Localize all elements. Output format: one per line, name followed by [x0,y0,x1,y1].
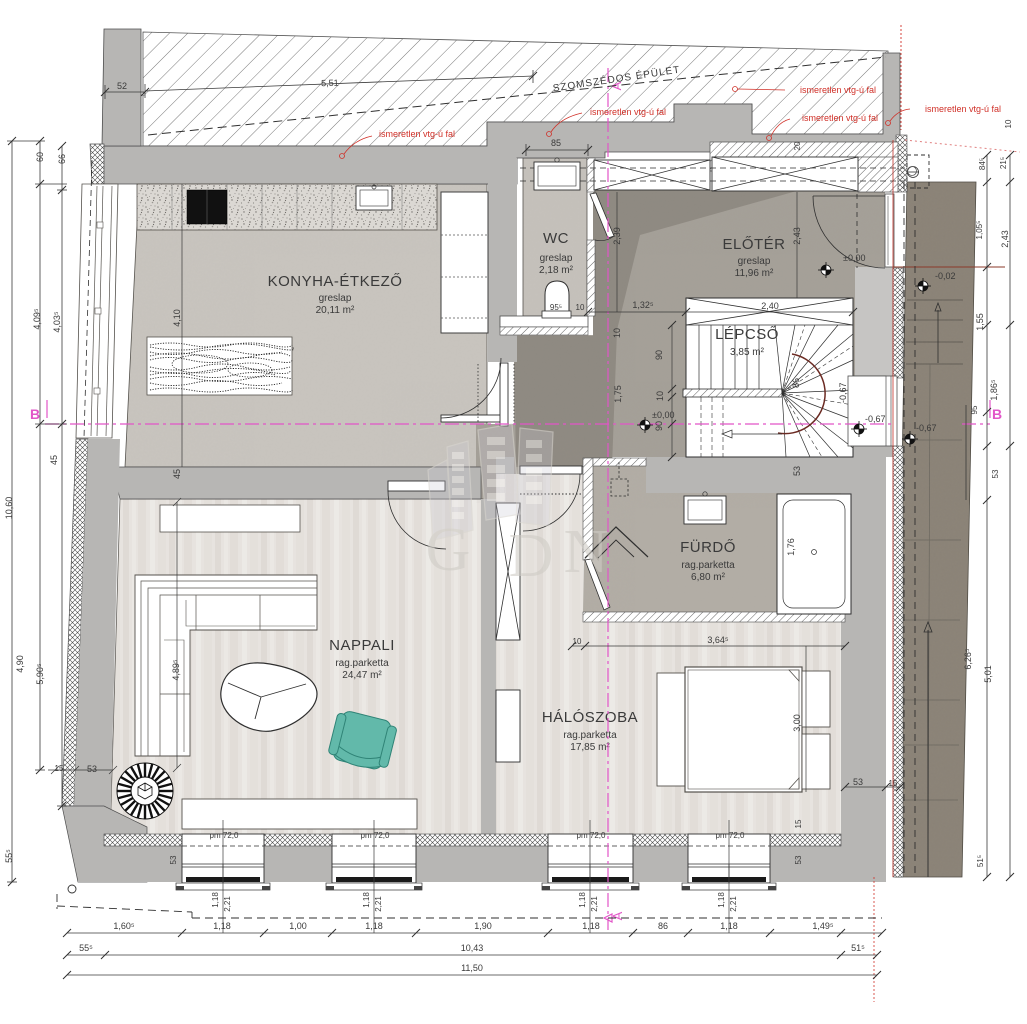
svg-text:1,00: 1,00 [289,921,307,931]
svg-text:LÉPCSŐ: LÉPCSŐ [715,326,779,343]
svg-text:86: 86 [791,378,801,388]
svg-text:pm 72,0: pm 72,0 [577,831,606,840]
svg-text:2,43: 2,43 [1000,230,1010,248]
svg-text:53: 53 [991,469,1000,478]
svg-text:6,80 m²: 6,80 m² [691,572,726,583]
svg-text:1,75: 1,75 [613,385,623,403]
svg-text:KONYHA-ÉTKEZŐ: KONYHA-ÉTKEZŐ [268,273,403,290]
svg-text:85: 85 [551,138,561,148]
svg-text:52: 52 [117,81,127,91]
svg-text:±0,00: ±0,00 [843,253,865,263]
svg-text:45: 45 [172,469,182,479]
svg-text:1,90: 1,90 [474,921,492,931]
svg-text:20: 20 [793,141,802,150]
svg-text:5,51: 5,51 [321,78,339,89]
svg-text:4,03⁵: 4,03⁵ [52,311,62,333]
svg-text:2,21: 2,21 [223,896,232,912]
svg-text:ismeretlen vtg-ú fal: ismeretlen vtg-ú fal [800,85,876,95]
svg-text:2,21: 2,21 [590,896,599,912]
svg-text:2,21: 2,21 [374,896,383,912]
svg-text:55⁵: 55⁵ [4,849,14,863]
svg-text:ismeretlen vtg-ú fal: ismeretlen vtg-ú fal [925,104,1001,114]
svg-text:90: 90 [654,421,664,431]
svg-text:G: G [426,516,471,584]
svg-text:1,18: 1,18 [211,892,220,908]
svg-text:3,00: 3,00 [792,714,802,732]
svg-text:51⁵: 51⁵ [851,943,865,953]
svg-text:ismeretlen vtg-ú fal: ismeretlen vtg-ú fal [379,129,455,139]
svg-text:-0,67: -0,67 [865,414,886,424]
svg-text:greslap: greslap [738,256,771,267]
svg-text:53: 53 [169,855,178,864]
svg-text:24,47 m²: 24,47 m² [342,670,382,681]
svg-text:60: 60 [35,152,45,162]
svg-text:ismeretlen vtg-ú fal: ismeretlen vtg-ú fal [802,113,878,123]
svg-text:17,85 m²: 17,85 m² [570,742,610,753]
svg-text:2,40: 2,40 [761,301,779,311]
svg-text:4,10: 4,10 [172,309,182,327]
svg-text:1,32⁵: 1,32⁵ [632,300,654,310]
svg-text:10,60: 10,60 [4,497,14,520]
svg-text:pm 72,0: pm 72,0 [716,831,745,840]
svg-text:N: N [564,518,609,586]
svg-text:3,64⁵: 3,64⁵ [707,635,729,645]
svg-text:HÁLÓSZOBA: HÁLÓSZOBA [542,709,638,726]
svg-text:1,86⁵: 1,86⁵ [989,379,999,401]
svg-text:10: 10 [1004,119,1013,128]
svg-text:5,90⁵: 5,90⁵ [35,663,45,685]
svg-text:-0,67: -0,67 [838,382,848,403]
svg-text:4,09⁵: 4,09⁵ [32,308,42,330]
svg-text:3,85 m²: 3,85 m² [730,347,765,358]
svg-text:95⁵: 95⁵ [550,303,562,312]
svg-text:WC: WC [543,230,569,247]
svg-text:rag.parketta: rag.parketta [681,560,735,571]
svg-text:2,18 m²: 2,18 m² [539,265,574,276]
svg-text:1,18: 1,18 [582,921,600,931]
svg-text:90: 90 [654,350,664,360]
svg-text:51⁵: 51⁵ [976,855,985,867]
svg-text:53: 53 [792,466,802,476]
svg-text:greslap: greslap [319,293,352,304]
svg-text:10: 10 [655,391,665,401]
svg-text:FÜRDŐ: FÜRDŐ [680,538,736,556]
svg-text:-0,02: -0,02 [935,271,956,281]
svg-text:53: 53 [794,855,803,864]
svg-text:53: 53 [87,764,97,774]
svg-text:B: B [30,406,40,422]
svg-text:2,21: 2,21 [729,896,738,912]
svg-text:10: 10 [612,328,622,338]
svg-text:95: 95 [970,405,979,414]
svg-text:ELŐTÉR: ELŐTÉR [722,236,785,253]
svg-text:pm 72,0: pm 72,0 [210,831,239,840]
svg-text:4,89⁵: 4,89⁵ [171,659,181,681]
svg-text:20,11 m²: 20,11 m² [316,305,355,316]
svg-text:15: 15 [55,764,64,773]
svg-text:1,49⁵: 1,49⁵ [812,921,834,931]
svg-text:84⁵: 84⁵ [978,158,987,170]
svg-text:1,05⁵: 1,05⁵ [975,221,984,240]
svg-text:53: 53 [853,777,863,787]
svg-text:1,18: 1,18 [578,892,587,908]
svg-text:45: 45 [49,455,59,465]
svg-text:1,76: 1,76 [786,538,796,556]
svg-text:±0,00: ±0,00 [652,410,674,420]
svg-text:pm 72,0: pm 72,0 [361,831,390,840]
svg-text:66: 66 [57,154,67,164]
svg-text:B: B [992,406,1002,422]
svg-text:11,96 m²: 11,96 m² [735,268,774,279]
svg-text:4,90: 4,90 [15,655,25,673]
svg-text:rag.parketta: rag.parketta [563,730,617,741]
svg-text:greslap: greslap [540,253,573,264]
svg-text:11,50: 11,50 [461,963,483,973]
svg-text:D: D [509,522,554,590]
svg-text:rag.parketta: rag.parketta [335,658,389,669]
svg-text:NAPPALI: NAPPALI [329,637,395,654]
svg-text:1,18: 1,18 [362,892,371,908]
svg-text:86: 86 [658,921,668,931]
svg-text:1,60⁵: 1,60⁵ [113,921,135,931]
svg-text:55⁵: 55⁵ [79,943,93,953]
svg-text:10,43: 10,43 [461,943,484,953]
svg-text:1,18: 1,18 [213,921,231,931]
svg-text:6,26⁵: 6,26⁵ [963,648,973,670]
svg-text:5,01: 5,01 [983,665,993,683]
svg-text:-0,67: -0,67 [916,423,937,433]
svg-text:1,18: 1,18 [717,892,726,908]
svg-text:ismeretlen vtg-ú fal: ismeretlen vtg-ú fal [590,107,666,117]
svg-text:10: 10 [576,303,585,312]
svg-text:15: 15 [794,819,803,828]
